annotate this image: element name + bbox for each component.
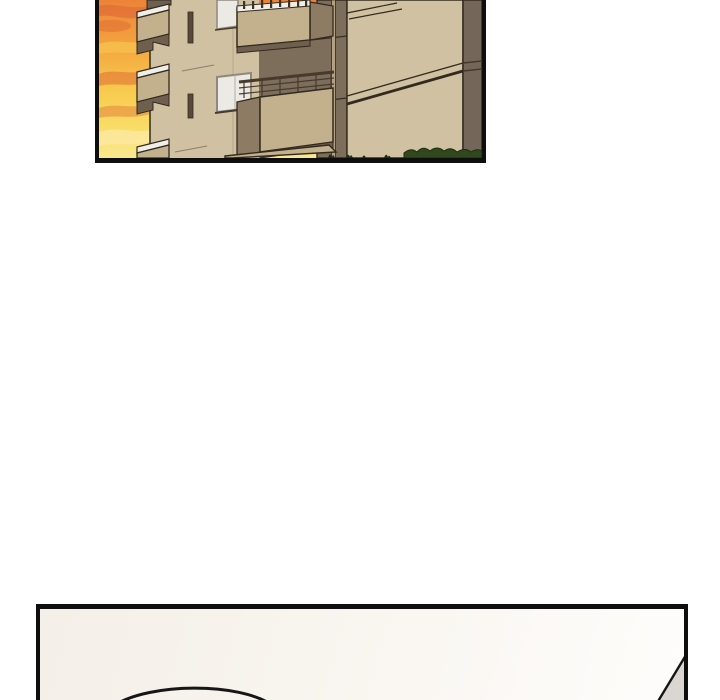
panel-building-exterior [95,0,486,163]
slit-window [188,12,193,43]
corner-wall [463,0,482,158]
right-wall [347,0,463,158]
head-outline [115,688,272,700]
comic-strip [0,0,720,700]
building-scene-illustration [99,0,482,158]
corner-wedge-shape [657,655,684,700]
closeup-scene-illustration [40,609,684,700]
panel-closeup [36,604,688,700]
slit-window [188,94,193,118]
